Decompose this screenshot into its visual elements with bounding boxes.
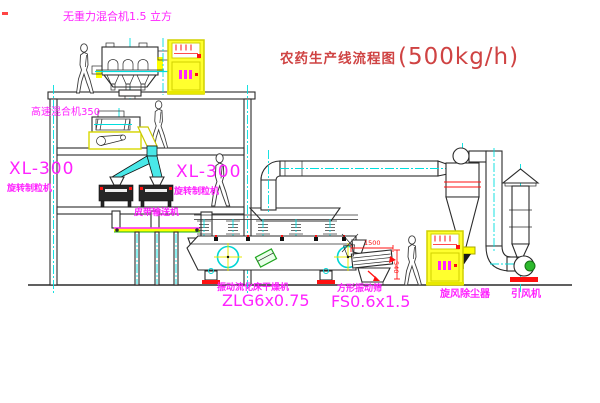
- exhaust-duct: [250, 150, 452, 221]
- person-figure: [405, 236, 422, 285]
- flow-diagram-canvas: 农药生产线流程图 (500kg/h) 无重力混合机1.5 立方 高速混合机350…: [0, 0, 600, 403]
- title-rate: (500kg/h): [398, 44, 519, 70]
- diagram-title: 农药生产线流程图 (500kg/h): [280, 44, 519, 70]
- control-cabinet-lower: [426, 231, 464, 285]
- control-cabinet-upper: [163, 38, 205, 95]
- granulator-left: [99, 177, 133, 207]
- dim-screen-height: 540: [393, 261, 400, 273]
- gravity-free-mixer: [92, 38, 171, 99]
- dim-screen-length: 1500: [364, 240, 381, 247]
- label-cyclone: 旋风除尘器: [440, 290, 490, 300]
- label-belt-conveyor: 皮带输送机: [134, 209, 179, 218]
- label-granulator-right-name: 旋转制粒机: [174, 188, 219, 197]
- fluid-bed-dryer: [187, 215, 366, 284]
- belt-conveyor: [114, 228, 200, 285]
- label-granulator-right-model: XL-300: [176, 164, 241, 181]
- granulator-chute-left: [112, 211, 120, 228]
- label-dryer-model: ZLG6x0.75: [222, 293, 310, 309]
- label-granulator-left-model: XL-300: [9, 161, 74, 178]
- label-screen-model: FS0.6x1.5: [331, 294, 410, 310]
- label-granulator-left-name: 旋转制粒机: [7, 185, 52, 194]
- label-highspeed-mixer: 高速混合机350: [31, 108, 100, 118]
- title-text: 农药生产线流程图: [280, 47, 396, 70]
- red-mark-fragment: [2, 12, 8, 15]
- person-figure: [77, 44, 94, 93]
- label-fan: 引风机: [511, 290, 541, 300]
- granulator-right: [139, 177, 173, 207]
- label-gravity-mixer: 无重力混合机1.5 立方: [63, 11, 172, 22]
